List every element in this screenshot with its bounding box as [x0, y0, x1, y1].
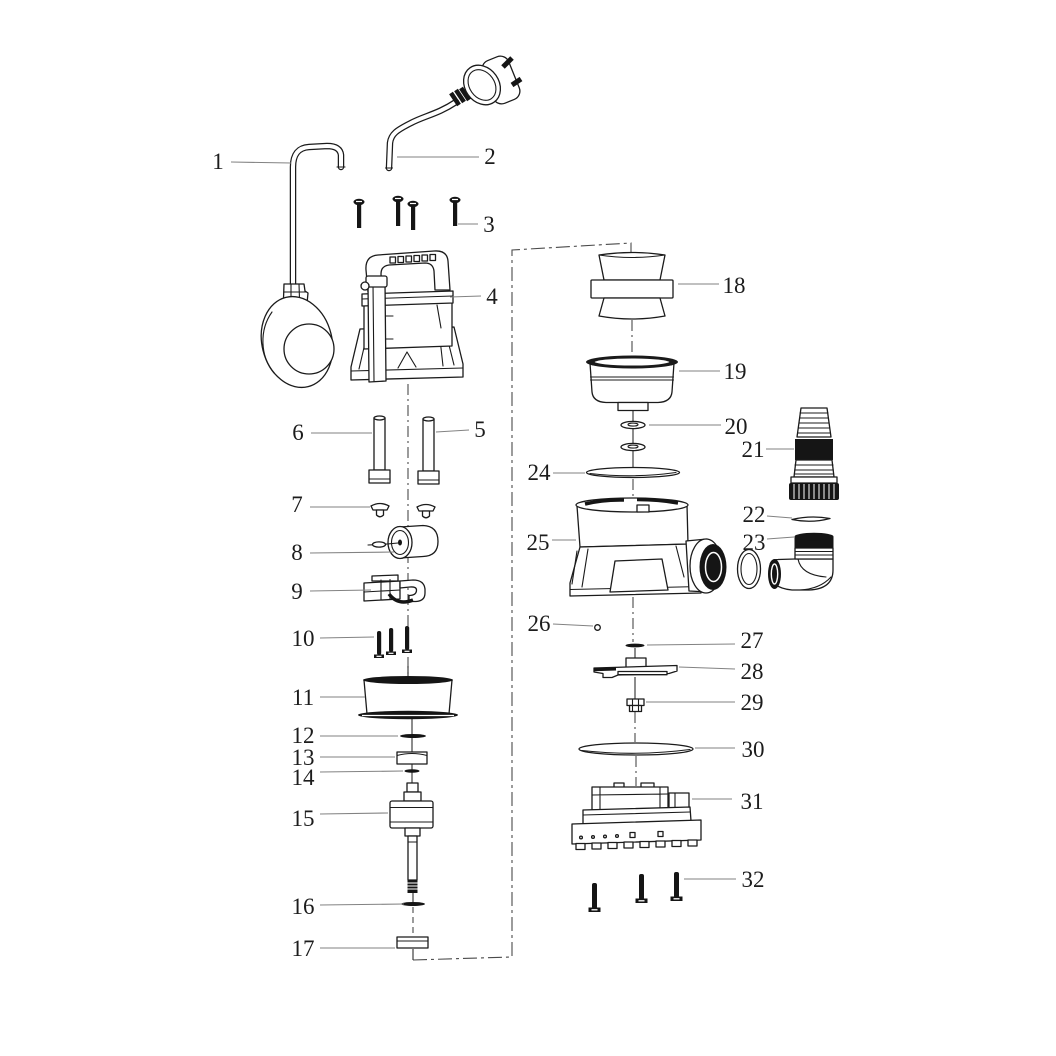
part-6-bolt — [369, 416, 390, 483]
part-14-washer — [405, 769, 420, 773]
part-label-25: 25 — [527, 530, 550, 555]
leader-line-28 — [679, 667, 735, 669]
part-27-washer — [626, 644, 645, 648]
part-25-pump-body — [570, 498, 727, 596]
leader-line-10 — [320, 637, 374, 638]
part-5-bolt — [418, 417, 439, 484]
part-label-31: 31 — [741, 789, 764, 814]
leader-line-15 — [320, 813, 388, 814]
part-label-1: 1 — [212, 149, 224, 174]
leader-line-16 — [320, 904, 404, 905]
part-label-11: 11 — [292, 685, 314, 710]
diagram-page: 1234567891011121314151617181920212223242… — [0, 0, 1056, 1056]
leader-line-14 — [320, 771, 403, 772]
part-26-pin — [595, 625, 601, 631]
part-label-27: 27 — [741, 628, 764, 653]
part-label-14: 14 — [292, 765, 316, 790]
part-label-16: 16 — [292, 894, 315, 919]
part-3-screws — [354, 196, 461, 230]
part-10-screws — [374, 626, 412, 658]
part-label-10: 10 — [292, 626, 315, 651]
part-label-4: 4 — [486, 284, 498, 309]
part-15-rotor-shaft — [390, 783, 433, 893]
part-7-push-pins — [371, 504, 435, 518]
part-label-2: 2 — [484, 144, 496, 169]
part-22-flat-gasket — [792, 517, 830, 521]
diagram-svg: 1234567891011121314151617181920212223242… — [0, 0, 1056, 1056]
part-19-seal-cap — [586, 356, 678, 411]
part-13-bushing — [397, 752, 427, 764]
part-label-6: 6 — [292, 420, 304, 445]
part-30-base-ring — [579, 743, 693, 755]
part-28-impeller — [594, 658, 677, 678]
part-label-18: 18 — [723, 273, 746, 298]
part-label-28: 28 — [741, 659, 764, 684]
part-label-21: 21 — [742, 437, 765, 462]
leader-line-27 — [647, 644, 735, 645]
part-1-float-switch — [252, 146, 345, 395]
part-12-washer — [400, 734, 426, 738]
part-label-26: 26 — [528, 611, 551, 636]
leader-line-5 — [436, 430, 469, 432]
part-label-3: 3 — [483, 212, 495, 237]
part-label-19: 19 — [724, 359, 747, 384]
part-24-large-gasket — [587, 468, 680, 478]
part-18-coupling-sleeve — [591, 253, 673, 320]
part-16-washer — [401, 902, 425, 906]
part-label-15: 15 — [292, 806, 315, 831]
part-8-capacitor — [368, 526, 438, 559]
leader-line-23 — [767, 537, 794, 539]
leader-line-22 — [767, 516, 792, 518]
part-17-seal-disc — [397, 937, 428, 948]
part-label-9: 9 — [291, 579, 303, 604]
leader-line-4 — [450, 296, 481, 297]
part-9-clip-bracket — [364, 575, 425, 602]
part-label-5: 5 — [474, 417, 486, 442]
part-label-32: 32 — [742, 867, 765, 892]
part-label-7: 7 — [291, 492, 303, 517]
part-4-pump-upper-housing — [351, 251, 463, 382]
part-label-17: 17 — [292, 936, 315, 961]
part-label-23: 23 — [743, 530, 766, 555]
part-label-20: 20 — [725, 414, 748, 439]
leader-line-26 — [553, 624, 593, 626]
part-2-power-cord — [386, 53, 523, 168]
part-29-shaft-nut — [627, 699, 644, 712]
part-31-base-plate — [572, 783, 701, 850]
leader-line-1 — [231, 162, 291, 163]
leader-line-9 — [310, 590, 371, 591]
part-32-screws — [589, 872, 683, 912]
part-21-hose-adapter — [789, 408, 839, 500]
leader-line-8 — [310, 552, 394, 553]
part-label-29: 29 — [741, 690, 764, 715]
part-11-motor-housing — [358, 676, 458, 719]
part-label-22: 22 — [743, 502, 766, 527]
part-label-8: 8 — [291, 540, 303, 565]
part-label-24: 24 — [528, 460, 552, 485]
part-label-30: 30 — [742, 737, 765, 762]
